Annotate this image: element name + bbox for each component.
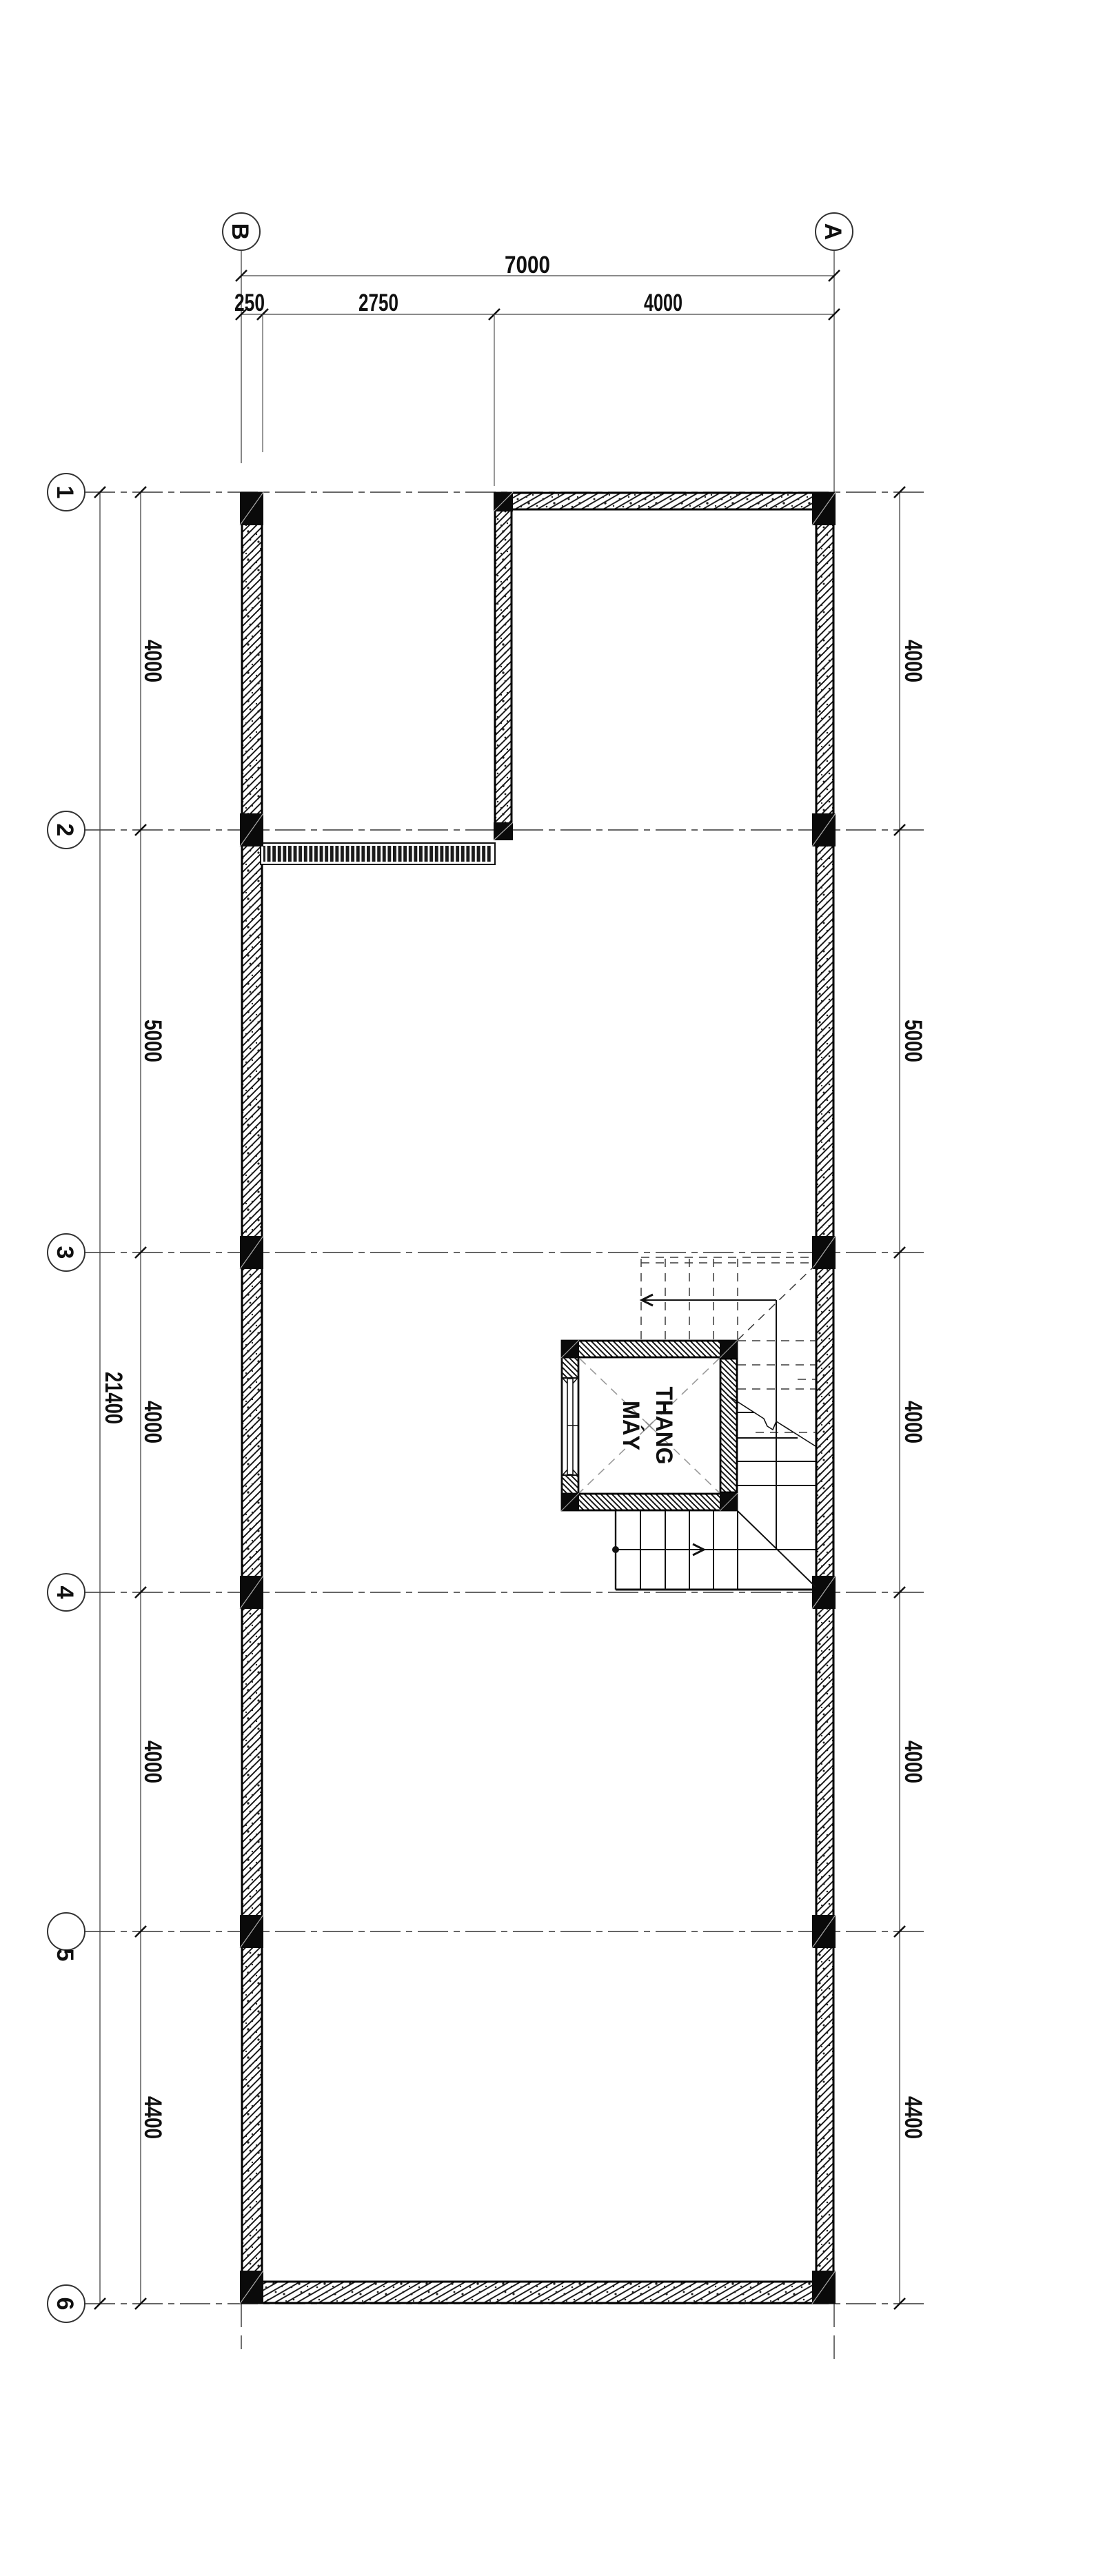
svg-text:MÁY: MÁY [618, 1401, 644, 1450]
svg-text:B: B [227, 223, 253, 241]
svg-text:4000: 4000 [139, 1741, 166, 1783]
svg-text:4000: 4000 [900, 1741, 927, 1783]
svg-text:1: 1 [52, 486, 78, 499]
svg-text:A: A [820, 223, 846, 241]
svg-text:4400: 4400 [139, 2096, 166, 2139]
svg-text:4000: 4000 [900, 1401, 927, 1443]
svg-text:2: 2 [52, 824, 78, 837]
svg-text:4000: 4000 [644, 290, 682, 316]
svg-text:5: 5 [52, 1949, 78, 1962]
svg-text:3: 3 [52, 1246, 78, 1259]
svg-text:4000: 4000 [139, 640, 166, 682]
svg-text:21400: 21400 [100, 1372, 127, 1424]
svg-text:5000: 5000 [900, 1020, 927, 1062]
svg-text:THANG: THANG [651, 1387, 677, 1465]
svg-text:7000: 7000 [505, 252, 550, 278]
svg-text:250: 250 [234, 290, 265, 316]
svg-text:6: 6 [52, 2298, 78, 2311]
svg-text:5000: 5000 [139, 1020, 166, 1062]
svg-text:4000: 4000 [139, 1401, 166, 1443]
svg-text:2750: 2750 [358, 290, 398, 316]
svg-text:4: 4 [52, 1586, 78, 1599]
svg-text:4000: 4000 [900, 640, 927, 682]
svg-text:4400: 4400 [900, 2096, 927, 2139]
